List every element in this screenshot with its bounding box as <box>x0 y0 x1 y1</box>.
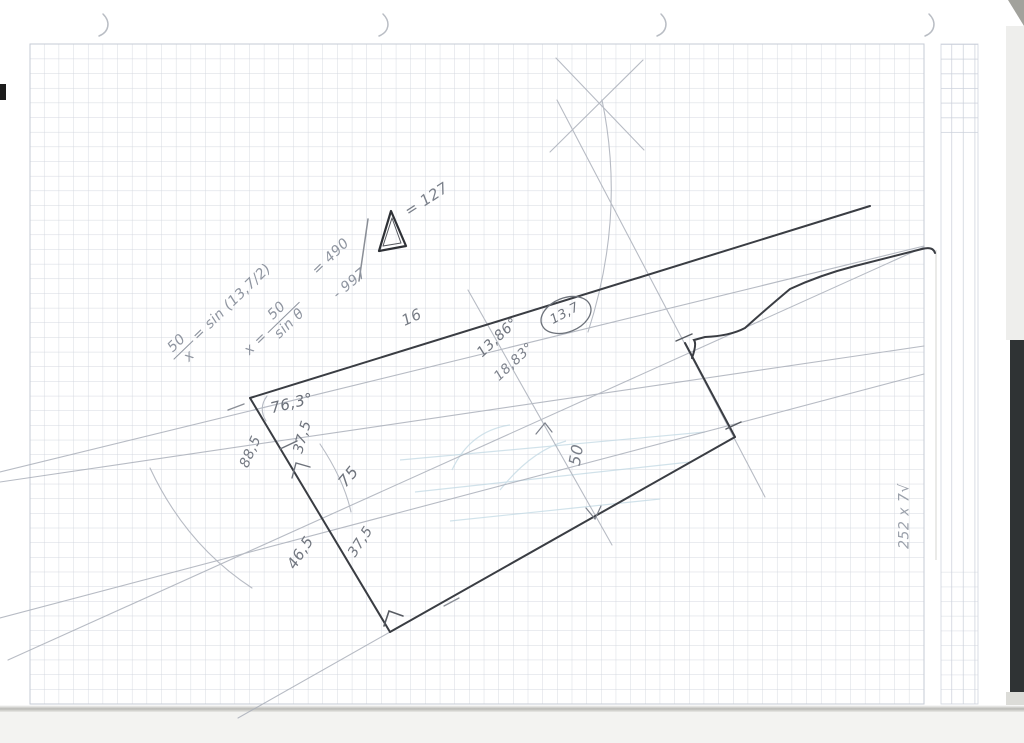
scanner-left-mark <box>0 84 6 100</box>
scanner-right-band <box>1010 340 1024 692</box>
margin-note-label: 252 x 7√ <box>898 483 913 549</box>
right-edge-light <box>1006 26 1024 340</box>
width-dimension-label: 50 <box>567 443 587 467</box>
underlying-page-strip <box>941 44 978 704</box>
graph-grid <box>30 44 924 704</box>
scanned-graph-paper-page: 50 x = sin (13,7/2) x = 50 sin θ = 490 -… <box>0 0 1024 743</box>
scanner-bottom-band <box>0 712 1024 743</box>
page-bottom-shadow <box>0 705 1024 712</box>
